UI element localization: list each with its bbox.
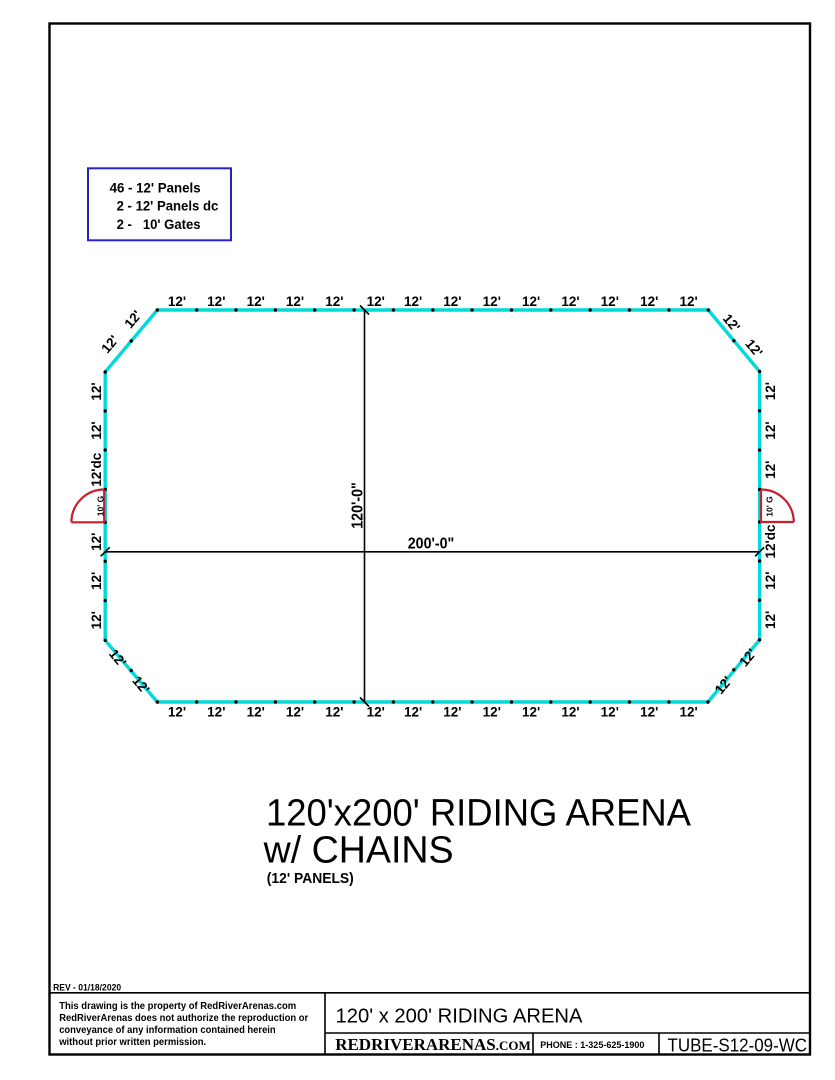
svg-text:PHONE : 1-325-625-1900: PHONE : 1-325-625-1900 [540,1040,644,1050]
svg-text:120'x200' RIDING ARENA: 120'x200' RIDING ARENA [266,793,692,835]
svg-text:12': 12' [89,572,104,590]
svg-text:12': 12' [207,705,225,720]
svg-text:12': 12' [763,461,778,479]
svg-text:12': 12' [561,294,579,309]
svg-text:12': 12' [679,294,697,309]
svg-text:12': 12' [443,705,461,720]
svg-text:12': 12' [640,294,658,309]
svg-text:conveyance of any information: conveyance of any information contained … [59,1025,276,1036]
svg-text:12': 12' [89,611,104,629]
svg-text:12'dc: 12'dc [763,524,778,558]
svg-text:120'-0": 120'-0" [350,482,367,529]
svg-text:12': 12' [325,705,343,720]
svg-text:120' x 200' RIDING ARENA: 120' x 200' RIDING ARENA [336,1004,583,1027]
svg-text:12': 12' [89,533,104,551]
svg-text:12': 12' [640,705,658,720]
svg-text:12': 12' [763,611,778,629]
svg-text:This drawing is the property o: This drawing is the property of RedRiver… [59,1001,296,1012]
svg-text:12': 12' [561,705,579,720]
svg-text:12': 12' [247,294,265,309]
svg-text:12': 12' [367,294,385,309]
svg-text:without prior written permissi: without prior written permission. [58,1037,206,1048]
svg-text:12': 12' [763,421,778,439]
svg-text:12': 12' [286,705,304,720]
svg-text:12': 12' [168,705,186,720]
svg-text:12': 12' [98,332,121,356]
svg-text:200'-0": 200'-0" [408,536,455,553]
svg-text:12': 12' [168,294,186,309]
svg-text:12': 12' [522,294,540,309]
svg-text:12': 12' [601,705,619,720]
svg-text:12': 12' [443,294,461,309]
svg-text:12': 12' [89,382,104,400]
svg-text:TUBE-S12-09-WC: TUBE-S12-09-WC [668,1036,808,1056]
svg-text:w/ CHAINS: w/ CHAINS [263,830,454,872]
svg-text:46 - 12' Panels: 46 - 12' Panels [110,180,201,196]
svg-text:12': 12' [404,705,422,720]
svg-text:(12' PANELS): (12' PANELS) [267,871,354,887]
svg-text:12'dc: 12'dc [89,452,104,486]
svg-text:12': 12' [367,705,385,720]
svg-text:12': 12' [89,421,104,439]
svg-text:12': 12' [679,705,697,720]
svg-text:10' G: 10' G [96,495,106,516]
svg-text:12': 12' [207,294,225,309]
svg-text:12': 12' [720,311,743,335]
svg-text:RedRiverArenas does not author: RedRiverArenas does not authorize the re… [59,1013,308,1024]
svg-text:2 - 10' Gates: 2 - 10' Gates [117,216,201,232]
svg-text:2 - 12' Panels dc: 2 - 12' Panels dc [117,198,219,214]
svg-text:12': 12' [325,294,343,309]
svg-text:12': 12' [483,294,501,309]
svg-text:12': 12' [522,705,540,720]
svg-text:10' G: 10' G [765,496,775,517]
svg-text:12': 12' [404,294,422,309]
svg-text:12': 12' [763,571,778,589]
svg-text:12': 12' [601,294,619,309]
svg-text:12': 12' [286,294,304,309]
svg-text:12': 12' [763,382,778,400]
svg-text:12': 12' [483,705,501,720]
svg-text:REDRIVERARENAS.COM: REDRIVERARENAS.COM [335,1035,531,1054]
svg-text:12': 12' [247,705,265,720]
